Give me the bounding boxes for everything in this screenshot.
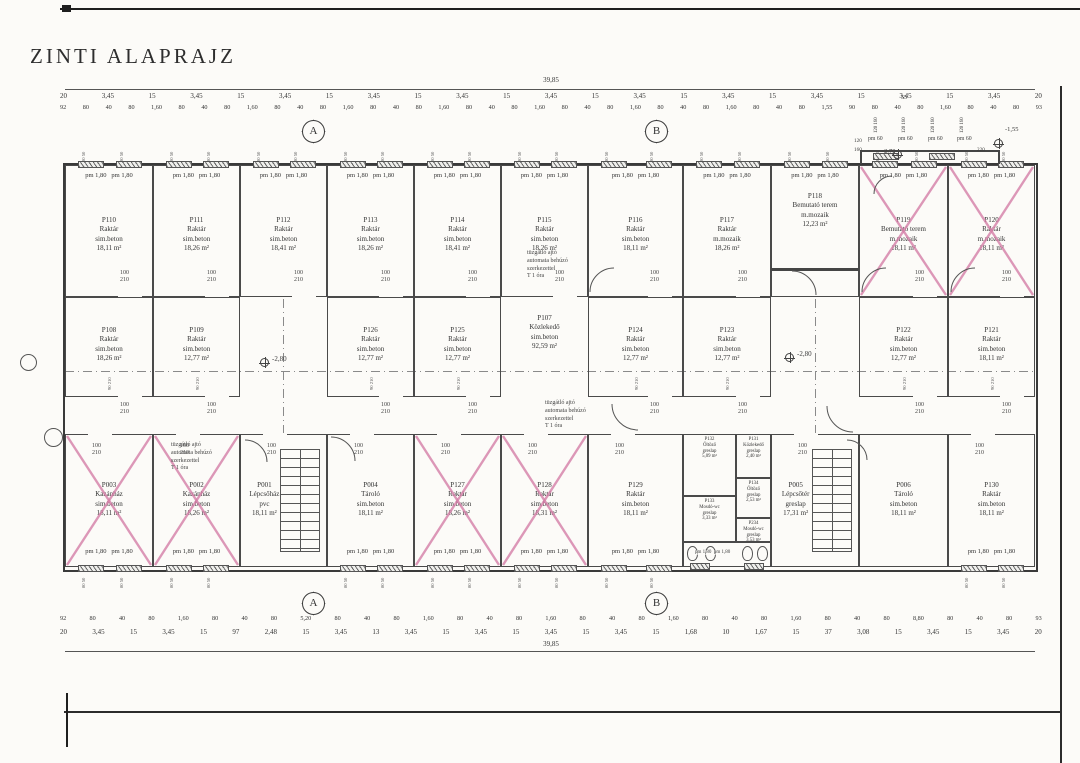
stairs — [812, 449, 852, 552]
room-label-line: P129 — [589, 481, 682, 490]
room-label-line: P113 — [328, 216, 413, 225]
door-dim-label: 100210 — [381, 402, 390, 416]
wall-dim-tick: 90 210 — [107, 377, 112, 390]
room-label-line: P123 — [684, 326, 770, 335]
window-sill-label: pm 1,80 pm 1,80 — [328, 548, 413, 555]
room-label: P123Raktársim.beton12,77 m² — [684, 326, 770, 364]
window-hatch — [744, 563, 764, 570]
window-hatch — [601, 565, 627, 572]
room-label-line: 12,77 m² — [589, 354, 682, 363]
axis-marker-letter: B — [645, 120, 668, 143]
door-opening — [794, 433, 818, 438]
door-dim-label: 100210 — [915, 402, 924, 416]
door-dim-line: 100 — [915, 402, 924, 409]
fire-door-note-line: szerkezettel — [171, 458, 212, 466]
room-label-line: m.mozaik — [684, 235, 770, 244]
door-dim-line: 100 — [1002, 402, 1011, 409]
room-P126: P126Raktársim.beton12,77 m²10021090 210 — [327, 297, 414, 397]
door-dim-line: 210 — [207, 277, 216, 284]
door-swing — [847, 440, 867, 460]
door-dim-line: 210 — [650, 277, 659, 284]
fire-door-note: tüzgátló ajtóautomata behúzószerkezettel… — [545, 400, 586, 431]
window-hatch — [784, 161, 810, 168]
door-swing — [874, 176, 892, 194]
room-label: P006Tárolósim.beton18,11 m² — [860, 481, 947, 519]
window-hatch — [340, 161, 366, 168]
room-label: P130Raktársim.beton18,11 m² — [949, 481, 1034, 519]
wall-dim-tick: 80 50 — [343, 578, 348, 588]
door-dim-label: 100210 — [468, 402, 477, 416]
stairs — [280, 449, 320, 552]
axis-marker-b: B — [643, 590, 669, 616]
room-label-line: Raktár — [66, 335, 152, 344]
wall-dim-tick: 90 210 — [902, 377, 907, 390]
room-label-line: Raktár — [66, 225, 152, 234]
room-label-line: P126 — [328, 326, 413, 335]
door-dim-label: 100210 — [738, 402, 747, 416]
room-label-line: P112 — [241, 216, 326, 225]
room-label-line: sim.beton — [589, 235, 682, 244]
door-dim-line: 210 — [798, 450, 807, 457]
door-dim-line: 100 — [381, 270, 390, 277]
room-label-line: sim.beton — [589, 500, 682, 509]
room-label-line: Raktár — [154, 335, 239, 344]
door-dim-line: 100 — [738, 402, 747, 409]
fire-door-note-line: automata behúzó — [171, 450, 212, 458]
room-label-line: sim.beton — [66, 345, 152, 354]
room-label-line: Raktár — [502, 225, 587, 234]
door-dim-label: 100210 — [120, 402, 129, 416]
wall-dim-tick: 80 50 — [914, 152, 919, 162]
door-dim-line: 210 — [650, 409, 659, 416]
axis-marker-a: A — [300, 590, 326, 616]
door-dim-line: 210 — [120, 409, 129, 416]
room-P133: P133Mosdó-wcgreslap3,33 m² — [683, 496, 736, 542]
room-label-line: Raktár — [415, 335, 500, 344]
room-label-line: sim.beton — [502, 235, 587, 244]
room-P121: P121Raktársim.beton18,11 m²10021090 210 — [948, 297, 1035, 397]
door-opening — [913, 395, 937, 400]
room-label-line: 18,26 m² — [328, 244, 413, 253]
room-label-line: 18,11 m² — [328, 509, 413, 518]
dim-annotation: 120 — [854, 138, 862, 144]
room-label-line: 2,53 m² — [737, 498, 770, 504]
wall-dim-tick: 80 50 — [169, 152, 174, 162]
toilet-icon — [742, 546, 753, 561]
door-opening — [1000, 395, 1024, 400]
axis-marker-letter: A — [302, 120, 325, 143]
door-dim-line: 100 — [738, 270, 747, 277]
room-P005: P005Lépcsőtérgreslap17,31 m²100210 — [771, 434, 859, 567]
window-sill-label: pm 1,80 pm 1,80 — [328, 172, 413, 179]
door-opening — [971, 433, 995, 438]
door-dim-line: 210 — [354, 450, 363, 457]
window-sill-label: pm 1,80 pm 1,80 — [415, 172, 500, 179]
door-dim-line: 100 — [615, 443, 624, 450]
room-label-line: 12,77 m² — [328, 354, 413, 363]
room-label: P113Raktársim.beton18,26 m² — [328, 216, 413, 254]
room-label-line: P107 — [501, 314, 588, 323]
room-label-line: P122 — [860, 326, 947, 335]
dim-annotation: pm 60 — [898, 136, 913, 142]
door-opening — [736, 395, 760, 400]
door-opening — [263, 433, 287, 438]
room-label-line: Raktár — [415, 225, 500, 234]
axis-marker-letter: A — [302, 592, 325, 615]
dim-annotation: 55 — [901, 95, 907, 101]
room-label-line: sim.beton — [154, 345, 239, 354]
room-label-line: sim.beton — [328, 345, 413, 354]
door-dim-line: 100 — [267, 443, 276, 450]
door-dim-label: 100210 — [798, 443, 807, 457]
room-P006: P006Tárolósim.beton18,11 m² — [859, 434, 948, 567]
scan-blob — [62, 5, 71, 12]
room-label-line: P108 — [66, 326, 152, 335]
room-label: P115Raktársim.beton18,26 m² — [502, 216, 587, 254]
room-label-line: Bemutató terem — [772, 201, 858, 210]
room-label-line: Raktár — [860, 335, 947, 344]
door-opening — [648, 395, 672, 400]
fire-door-note-line: T 1 óra — [171, 465, 212, 473]
wall-dim-tick: 80 50 — [964, 578, 969, 588]
room-P127: P127Raktársim.beton18,26 m²80 5080 50pm … — [414, 434, 501, 567]
door-opening — [118, 395, 142, 400]
room-P110: P110Raktársim.beton18,11 m²80 5080 50pm … — [65, 165, 153, 297]
wall-dim-tick: 80 50 — [430, 578, 435, 588]
room-label-line: Tároló — [328, 490, 413, 499]
window-hatch — [646, 565, 672, 572]
wall-dim-tick: 80 50 — [604, 152, 609, 162]
wall-dim-tick: 90 210 — [990, 377, 995, 390]
room-label-line: 12,23 m² — [772, 220, 858, 229]
room-label: P122Raktársim.beton12,77 m² — [860, 326, 947, 364]
room-label-line: 18,26 m² — [154, 244, 239, 253]
door-dim-line: 210 — [468, 409, 477, 416]
wall-dim-tick: 90 210 — [456, 377, 461, 390]
dim-annotation: pm 60 — [957, 136, 972, 142]
room-label-line: P004 — [328, 481, 413, 490]
fire-door-note-line: automata behúzó — [545, 408, 586, 416]
room-label-line: 12,77 m² — [154, 354, 239, 363]
dim-annotation: -1,55 — [1005, 126, 1019, 133]
window-hatch — [690, 563, 710, 570]
room-label-line: sim.beton — [328, 235, 413, 244]
room-label-line: sim.beton — [684, 345, 770, 354]
door-dim-line: 210 — [975, 450, 984, 457]
room-label-line: 12,77 m² — [860, 354, 947, 363]
dim-annotation: 120 160 — [902, 117, 907, 133]
door-swing — [590, 268, 614, 292]
door-dim-label: 100210 — [650, 270, 659, 284]
wall-dim-tick: 80 50 — [467, 578, 472, 588]
room-label-line: Raktár — [949, 490, 1034, 499]
door-swing — [612, 404, 638, 430]
door-dim-line: 210 — [915, 409, 924, 416]
dim-annotation: 220 — [977, 147, 985, 153]
room-label: P112Raktársim.beton18,41 m² — [241, 216, 326, 254]
room-label-line: sim.beton — [501, 333, 588, 342]
room-label-line: P114 — [415, 216, 500, 225]
wall-dim-tick: 80 50 — [256, 152, 261, 162]
room-label-line: 92,59 m² — [501, 342, 588, 351]
door-dim-line: 100 — [650, 270, 659, 277]
door-dim-line: 210 — [381, 277, 390, 284]
fire-door-note: tüzgátló ajtóautomata behúzószerkezettel… — [171, 442, 212, 473]
room-label-line: sim.beton — [66, 235, 152, 244]
door-dim-line: 100 — [650, 402, 659, 409]
wall-dim-tick: 80 50 — [119, 578, 124, 588]
door-swing — [827, 406, 853, 432]
room-label-line: P111 — [154, 216, 239, 225]
wall-dim-tick: 80 50 — [1001, 578, 1006, 588]
window-hatch — [961, 565, 987, 572]
wall-dim-tick: 90 210 — [195, 377, 200, 390]
toilet-icon — [757, 546, 768, 561]
room-label-line: sim.beton — [589, 345, 682, 354]
room-label-line: P115 — [502, 216, 587, 225]
dim-annotation: -2,80 — [797, 350, 812, 358]
room-P128: P128Raktársim.beton18,31 m²80 5080 50pm … — [501, 434, 588, 567]
room-label-line: m.mozaik — [772, 211, 858, 220]
wall-dim-tick: 80 50 — [964, 152, 969, 162]
dim-annotation: -2,80 — [272, 355, 287, 363]
dim-annotation: 160 — [854, 147, 862, 153]
door-dim-line: 100 — [294, 270, 303, 277]
wall-dim-tick: 80 50 — [206, 578, 211, 588]
room-label: P134Öltözőgreslap2,53 m² — [737, 481, 770, 504]
room-label-line: P125 — [415, 326, 500, 335]
axis-dash-line — [815, 299, 816, 433]
fire-door-note-line: tüzgátló ajtó — [527, 250, 568, 258]
room-label-line: sim.beton — [860, 500, 947, 509]
window-sill-label: pm 1,80 pm 1,80 — [949, 548, 1034, 555]
level-benchmark-icon — [893, 150, 902, 159]
wall-dim-tick: 80 50 — [467, 152, 472, 162]
room-label-line: Raktár — [154, 225, 239, 234]
wall-segment — [998, 150, 1000, 164]
door-dim-line: 210 — [1002, 409, 1011, 416]
door-dim-line: 100 — [798, 443, 807, 450]
room-P234: P234Mosdó-wcgreslap3,53 m² — [736, 518, 771, 542]
room-P111: P111Raktársim.beton18,26 m²80 5080 50pm … — [153, 165, 240, 297]
window-hatch — [116, 161, 142, 168]
window-hatch — [377, 161, 403, 168]
wall-dim-tick: 80 50 — [380, 152, 385, 162]
door-dim-label: 100210 — [975, 443, 984, 457]
room-label: P108Raktársim.beton18,26 m² — [66, 326, 152, 364]
room-P129: P129Raktársim.beton18,11 m²80 5080 50pm … — [588, 434, 683, 567]
door-dim-line: 100 — [468, 270, 477, 277]
door-swing — [951, 268, 975, 292]
wall-dim-tick: 80 50 — [737, 152, 742, 162]
level-benchmark-icon — [994, 139, 1003, 148]
crossed-out-mark — [502, 435, 589, 568]
room-label: P133Mosdó-wcgreslap3,33 m² — [684, 499, 735, 522]
door-swing — [862, 268, 886, 292]
door-dim-line: 210 — [267, 450, 276, 457]
door-opening — [466, 395, 490, 400]
fire-door-note-line: automata behúzó — [527, 258, 568, 266]
door-dim-line: 100 — [975, 443, 984, 450]
window-sill-label: pm 1,80 pm 1,80 — [589, 172, 682, 179]
room-label-line: P117 — [684, 216, 770, 225]
axis-marker-letter: B — [645, 592, 668, 615]
wall-dim-tick: 80 50 — [649, 578, 654, 588]
room-label-line: 5,09 m² — [684, 454, 735, 460]
room-label: P234Mosdó-wcgreslap3,53 m² — [737, 521, 770, 544]
wall-dim-tick: 80 50 — [699, 152, 704, 162]
wall-dim-tick: 80 50 — [649, 152, 654, 162]
window-hatch — [203, 161, 229, 168]
window-sill-label: pm 1,80 pm 1,80 — [589, 548, 682, 555]
dim-annotation: 120 160 — [960, 117, 965, 133]
room-label: P129Raktársim.beton18,11 m² — [589, 481, 682, 519]
window-sill-label: pm 1,80 pm 1,80 — [66, 172, 152, 179]
scan-edge-bottom — [64, 711, 1062, 713]
room-label-line: P116 — [589, 216, 682, 225]
fire-door-note-line: T 1 óra — [545, 423, 586, 431]
crossed-out-mark — [415, 435, 502, 568]
dim-annotation: 120 160 — [931, 117, 936, 133]
wall-dim-tick: 80 50 — [554, 152, 559, 162]
window-hatch — [464, 161, 490, 168]
wall-dim-tick: 80 50 — [293, 152, 298, 162]
fire-door-note: tüzgátló ajtóautomata behúzószerkezettel… — [527, 250, 568, 281]
door-dim-label: 100210 — [468, 270, 477, 284]
room-label-line: Raktár — [589, 225, 682, 234]
room-label-line: 18,11 m² — [589, 244, 682, 253]
axis-marker-circle — [44, 428, 63, 447]
room-P122: P122Raktársim.beton12,77 m²10021090 210 — [859, 297, 948, 397]
room-label: P131Közlekedőgreslap2,40 m² — [737, 437, 770, 460]
window-hatch — [696, 161, 722, 168]
window-hatch — [822, 161, 848, 168]
scan-edge-left — [66, 693, 68, 747]
room-label-line: 3,33 m² — [684, 516, 735, 522]
room-label: P126Raktársim.beton12,77 m² — [328, 326, 413, 364]
window-hatch — [290, 161, 316, 168]
door-dim-line: 210 — [381, 409, 390, 416]
window-hatch — [166, 161, 192, 168]
room-label-line: sim.beton — [241, 235, 326, 244]
room-label-line: P130 — [949, 481, 1034, 490]
room-label-line: P110 — [66, 216, 152, 225]
door-dim-label: 100210 — [1002, 402, 1011, 416]
window-hatch — [340, 565, 366, 572]
door-dim-label: 100210 — [354, 443, 363, 457]
axis-marker-b: B — [643, 118, 669, 144]
wall-dim-tick: 80 50 — [380, 578, 385, 588]
room-P117: P117Raktárm.mozaik18,26 m²80 5080 50pm 1… — [683, 165, 771, 297]
scanned-floor-plan-page: ZINTI ALAPRAJZ 39,85 203,45153,45153,451… — [0, 0, 1080, 763]
wall-dim-tick: 80 50 — [206, 152, 211, 162]
window-hatch — [734, 161, 760, 168]
door-dim-line: 210 — [615, 450, 624, 457]
window-hatch — [646, 161, 672, 168]
room-label-line: 18,26 m² — [684, 244, 770, 253]
room-P109: P109Raktársim.beton12,77 m²10021090 210 — [153, 297, 240, 397]
wall-dim-tick: 80 50 — [517, 578, 522, 588]
wall-dim-tick: 80 50 — [825, 152, 830, 162]
window-sill-label: pm 1,80 pm 1,80 — [772, 172, 858, 179]
window-hatch — [551, 161, 577, 168]
axis-marker-a: A — [300, 118, 326, 144]
axis-marker-circle — [20, 354, 37, 371]
room-label-line: 2,40 m² — [737, 454, 770, 460]
window-hatch — [998, 565, 1024, 572]
dim-annotation: pm 60 — [928, 136, 943, 142]
room-P125: P125Raktársim.beton12,77 m²10021090 210 — [414, 297, 501, 397]
room-label-line: sim.beton — [860, 345, 947, 354]
room-label-line: 18,11 m² — [949, 509, 1034, 518]
wall-dim-tick: 90 210 — [725, 377, 730, 390]
room-label-line: 12,77 m² — [415, 354, 500, 363]
wall-dim-tick: 80 50 — [119, 152, 124, 162]
wall-dim-tick: 80 50 — [430, 152, 435, 162]
room-label-line: Raktár — [684, 225, 770, 234]
door-dim-line: 100 — [354, 443, 363, 450]
room-label-line: Tároló — [860, 490, 947, 499]
door-opening — [205, 395, 229, 400]
door-dim-label: 100210 — [120, 270, 129, 284]
wall-dim-tick: 80 50 — [81, 578, 86, 588]
window-sill-label: pm 1,80 pm 1,80 — [695, 550, 730, 555]
room-P130: P130Raktársim.beton18,11 m²80 5080 50pm … — [948, 434, 1035, 567]
room-P123: P123Raktársim.beton12,77 m²10021090 210 — [683, 297, 771, 397]
room-label: P116Raktársim.beton18,11 m² — [589, 216, 682, 254]
room-label-line: 12,77 m² — [684, 354, 770, 363]
door-dim-label: 100210 — [267, 443, 276, 457]
fire-door-note-line: tüzgátló ajtó — [545, 400, 586, 408]
room-label: P124Raktársim.beton12,77 m² — [589, 326, 682, 364]
door-dim-line: 210 — [294, 277, 303, 284]
room-label-line: 18,11 m² — [949, 354, 1034, 363]
door-dim-label: 100210 — [294, 270, 303, 284]
window-sill-label: pm 1,80 pm 1,80 — [154, 172, 239, 179]
room-P112: P112Raktársim.beton18,41 m²80 5080 50pm … — [240, 165, 327, 297]
room-P132: P132Öltözőgreslap5,09 m² — [683, 434, 736, 496]
room-label: P121Raktársim.beton18,11 m² — [949, 326, 1034, 364]
room-P114: P114Raktársim.beton18,41 m²80 5080 50pm … — [414, 165, 501, 297]
room-label-line: 18,11 m² — [66, 244, 152, 253]
door-dim-label: 100210 — [738, 270, 747, 284]
room-label: P110Raktársim.beton18,11 m² — [66, 216, 152, 254]
room-label-line: sim.beton — [154, 235, 239, 244]
door-dim-line: 100 — [120, 402, 129, 409]
room-label-line: Raktár — [328, 335, 413, 344]
floor-plan: P110Raktársim.beton18,11 m²80 5080 50pm … — [0, 0, 1080, 763]
room-P113: P113Raktársim.beton18,26 m²80 5080 50pm … — [327, 165, 414, 297]
wall-dim-tick: 80 50 — [787, 152, 792, 162]
dim-annotation: 120 160 — [874, 117, 879, 133]
window-hatch — [427, 161, 453, 168]
room-label-line: Raktár — [589, 490, 682, 499]
room-label: P132Öltözőgreslap5,09 m² — [684, 437, 735, 460]
room-label-corridor: P107Közlekedősim.beton92,59 m² — [501, 314, 588, 352]
crossed-out-mark — [66, 435, 154, 568]
room-label-line: Közlekedő — [501, 323, 588, 332]
wall-dim-tick: 80 50 — [554, 578, 559, 588]
window-hatch — [253, 161, 279, 168]
window-hatch — [78, 161, 104, 168]
room-P003: P003Kazánházsim.beton18,11 m²80 5080 50p… — [65, 434, 153, 567]
door-dim-label: 100210 — [650, 402, 659, 416]
scan-edge-right — [1060, 86, 1062, 763]
wall-dim-tick: 80 50 — [517, 152, 522, 162]
door-dim-label: 100210 — [207, 270, 216, 284]
fire-door-note-line: tüzgátló ajtó — [171, 442, 212, 450]
fire-door-note-line: szerkezettel — [527, 266, 568, 274]
